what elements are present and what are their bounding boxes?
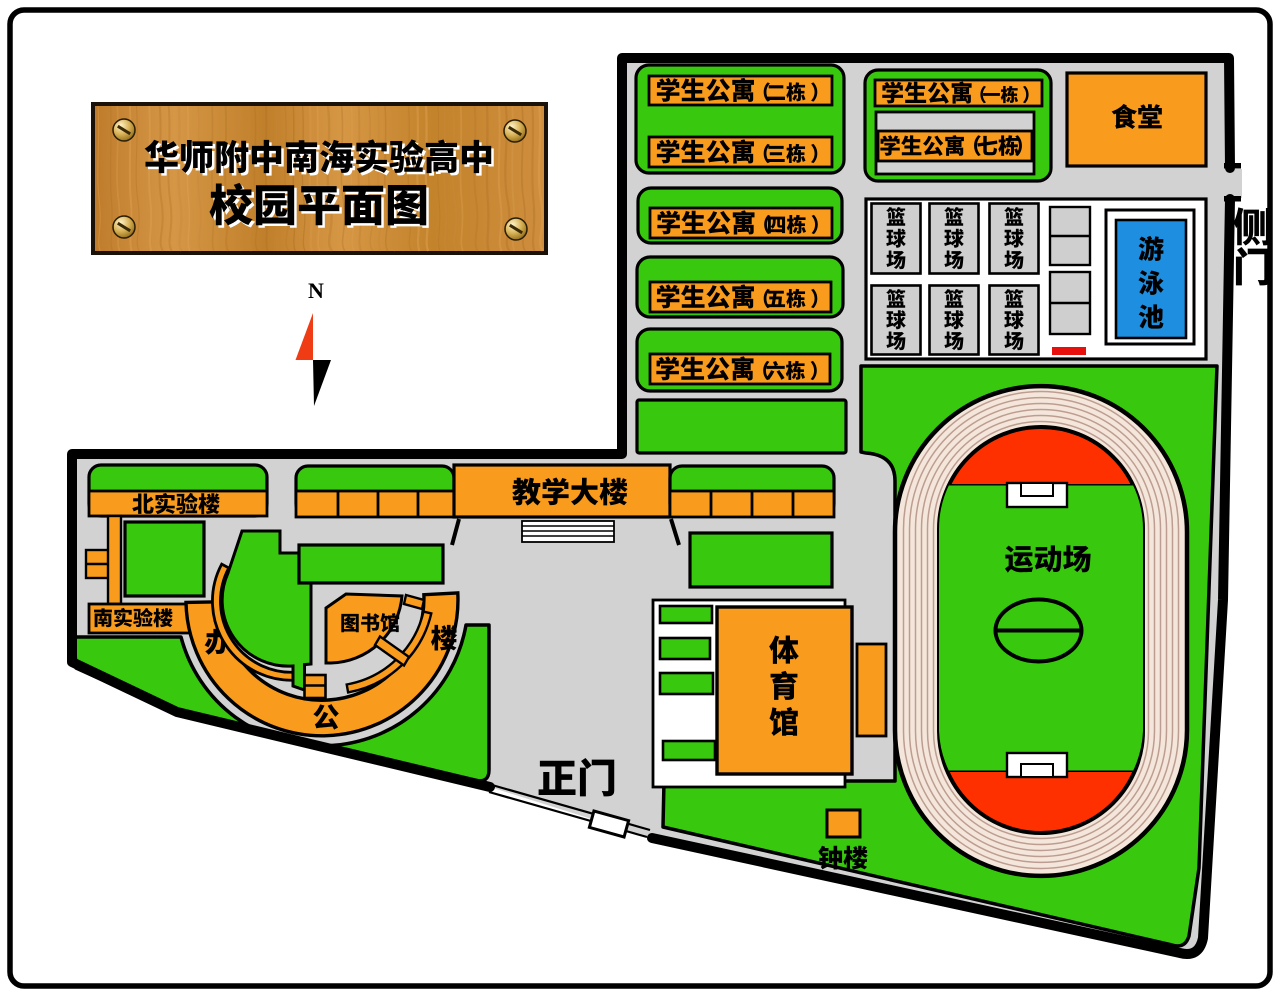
svg-text:N: N [308,278,324,303]
